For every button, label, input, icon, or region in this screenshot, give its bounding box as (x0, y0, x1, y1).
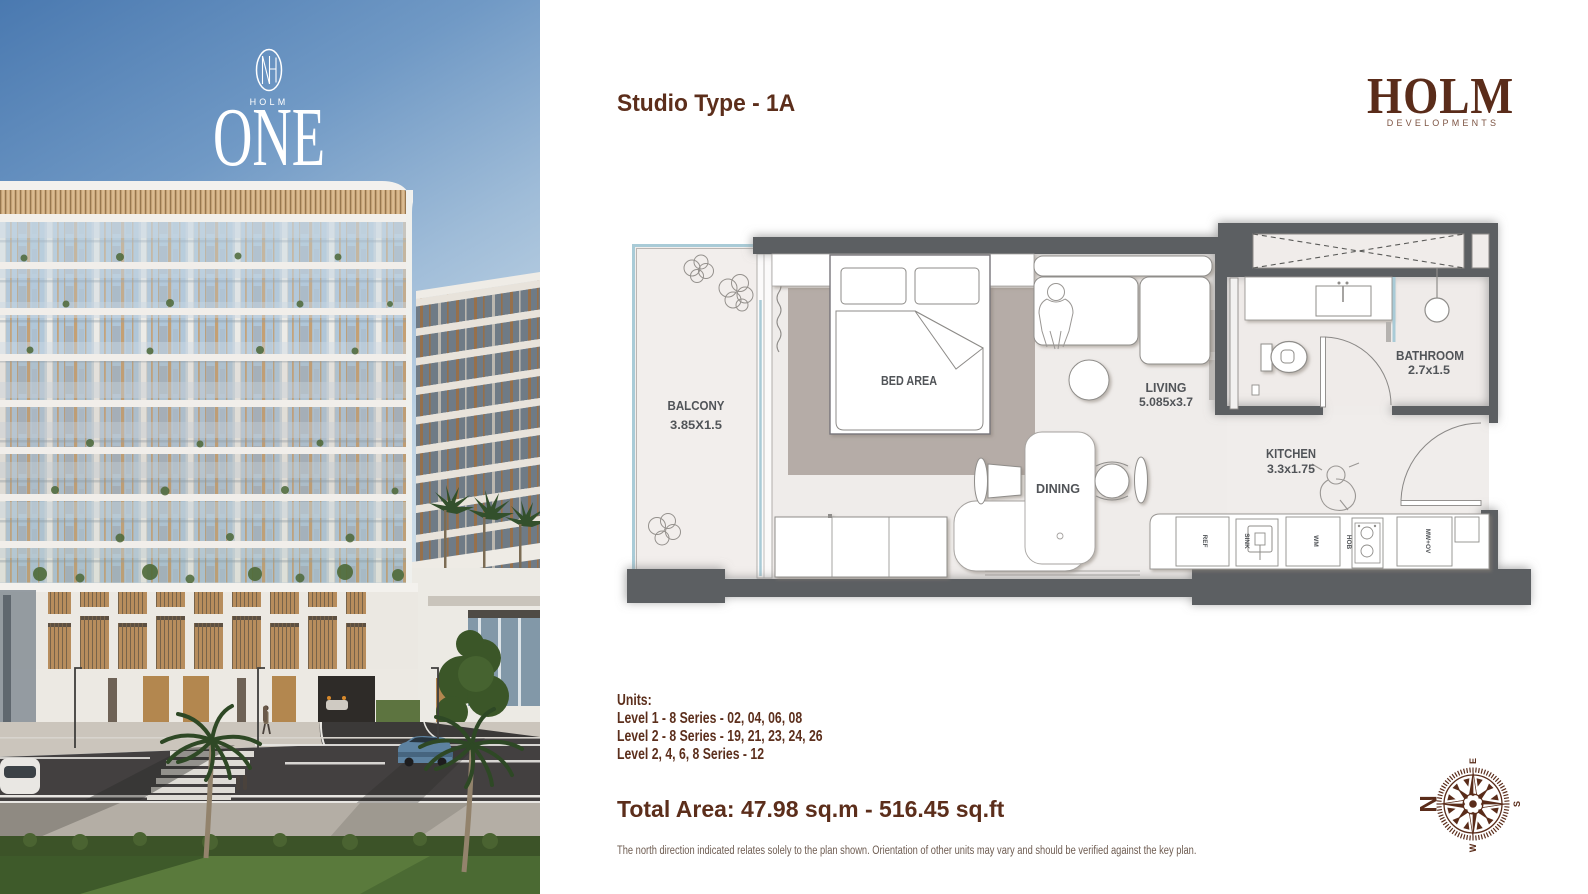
svg-text:SINK: SINK (1243, 533, 1250, 549)
svg-text:3.3x1.75: 3.3x1.75 (1267, 462, 1315, 476)
svg-text:DEVELOPMENTS: DEVELOPMENTS (1387, 118, 1499, 128)
svg-text:3.85X1.5: 3.85X1.5 (670, 418, 722, 432)
svg-text:N: N (1416, 795, 1443, 812)
svg-text:2.7x1.5: 2.7x1.5 (1408, 363, 1450, 377)
svg-text:HOLM: HOLM (1367, 70, 1514, 125)
svg-text:BALCONY: BALCONY (668, 398, 725, 413)
svg-text:REF: REF (1201, 535, 1208, 548)
svg-text:KITCHEN: KITCHEN (1266, 446, 1316, 461)
svg-text:S: S (1512, 801, 1522, 807)
svg-text:5.085x3.7: 5.085x3.7 (1139, 395, 1193, 409)
svg-text:BED AREA: BED AREA (881, 373, 938, 388)
svg-text:DINING: DINING (1036, 481, 1080, 496)
svg-text:LIVING: LIVING (1146, 380, 1187, 395)
svg-text:W: W (1468, 843, 1478, 852)
svg-text:WM: WM (1312, 535, 1319, 547)
svg-text:BATHROOM: BATHROOM (1396, 348, 1464, 363)
svg-text:MW+OV: MW+OV (1424, 529, 1431, 554)
svg-text:HOB: HOB (1345, 535, 1352, 550)
svg-text:ONE: ONE (213, 91, 325, 184)
svg-text:E: E (1468, 758, 1478, 764)
